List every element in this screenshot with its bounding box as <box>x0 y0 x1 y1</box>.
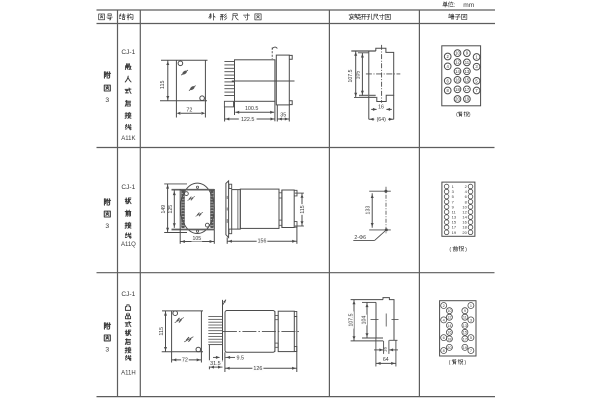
svg-text:14: 14 <box>455 69 460 74</box>
svg-text:14: 14 <box>447 324 451 328</box>
svg-text:3: 3 <box>105 347 109 354</box>
svg-text::: : <box>453 2 455 9</box>
svg-text:100.5: 100.5 <box>245 106 259 112</box>
svg-text:105: 105 <box>192 236 201 242</box>
svg-text:115: 115 <box>159 327 165 336</box>
svg-text:107.5: 107.5 <box>348 69 354 82</box>
svg-text:20: 20 <box>447 346 451 350</box>
svg-text:(: ( <box>449 247 451 253</box>
svg-text:15: 15 <box>465 77 470 82</box>
svg-text:16: 16 <box>383 347 388 353</box>
svg-text:149: 149 <box>161 205 167 214</box>
svg-text:105: 105 <box>356 71 362 80</box>
svg-text:16: 16 <box>455 77 460 82</box>
svg-text:9.5: 9.5 <box>237 355 245 361</box>
svg-text:115: 115 <box>160 81 166 90</box>
svg-text:122.5: 122.5 <box>241 117 255 123</box>
svg-text:19: 19 <box>465 97 470 102</box>
svg-text:10: 10 <box>447 309 451 313</box>
svg-text:16: 16 <box>447 331 451 335</box>
svg-text:19: 19 <box>452 230 457 235</box>
svg-text:CJ-1: CJ-1 <box>121 184 135 191</box>
svg-text:20: 20 <box>455 97 460 102</box>
svg-text:3: 3 <box>105 97 109 104</box>
svg-text:6: 6 <box>443 336 445 340</box>
svg-text:126: 126 <box>253 366 262 372</box>
svg-text:72: 72 <box>182 358 188 364</box>
svg-text:3: 3 <box>105 223 109 230</box>
svg-text:35: 35 <box>280 112 286 118</box>
svg-text:16: 16 <box>378 104 384 110</box>
svg-text:125: 125 <box>168 205 174 214</box>
svg-text:18: 18 <box>447 337 451 341</box>
svg-text:CJ-1: CJ-1 <box>121 291 135 298</box>
svg-text:17: 17 <box>465 87 470 92</box>
svg-text:(64): (64) <box>377 117 386 123</box>
svg-text:): ) <box>469 112 471 118</box>
svg-text:2: 2 <box>443 304 445 308</box>
svg-text:64: 64 <box>383 357 389 363</box>
svg-text:4: 4 <box>443 318 445 322</box>
svg-text:17: 17 <box>463 337 467 341</box>
svg-text:19: 19 <box>463 346 467 350</box>
svg-text:9: 9 <box>464 309 466 313</box>
svg-text:3: 3 <box>470 318 472 322</box>
svg-text:12: 12 <box>447 316 451 320</box>
svg-text:13: 13 <box>465 69 470 74</box>
svg-text:13: 13 <box>463 324 467 328</box>
svg-text:2-Φ6: 2-Φ6 <box>354 235 366 241</box>
svg-text:11: 11 <box>463 316 467 320</box>
svg-text:7: 7 <box>470 349 472 353</box>
svg-text:CJ-1: CJ-1 <box>121 49 135 56</box>
svg-text:1: 1 <box>470 304 472 308</box>
svg-text:72: 72 <box>186 107 192 113</box>
svg-text:133: 133 <box>365 206 371 215</box>
svg-text:A11H: A11H <box>121 371 136 377</box>
svg-text:11: 11 <box>465 60 470 65</box>
svg-text:15: 15 <box>463 331 467 335</box>
svg-text:A11Q: A11Q <box>121 242 136 248</box>
svg-text:20: 20 <box>462 230 467 235</box>
svg-text:8: 8 <box>443 349 445 353</box>
svg-text:A11K: A11K <box>121 136 135 142</box>
svg-text:107.5: 107.5 <box>349 313 355 326</box>
svg-text:12: 12 <box>455 60 460 65</box>
svg-text:): ) <box>464 360 466 366</box>
svg-text:(: ( <box>456 112 458 118</box>
svg-text:115: 115 <box>300 205 306 213</box>
svg-text:10: 10 <box>455 51 460 56</box>
svg-text:): ) <box>465 247 467 253</box>
svg-text:156: 156 <box>258 239 267 245</box>
svg-text:5: 5 <box>470 336 472 340</box>
svg-text:(: ( <box>449 360 451 366</box>
svg-text:18: 18 <box>455 87 460 92</box>
svg-text:mm: mm <box>463 2 474 9</box>
svg-text:104: 104 <box>362 316 368 325</box>
